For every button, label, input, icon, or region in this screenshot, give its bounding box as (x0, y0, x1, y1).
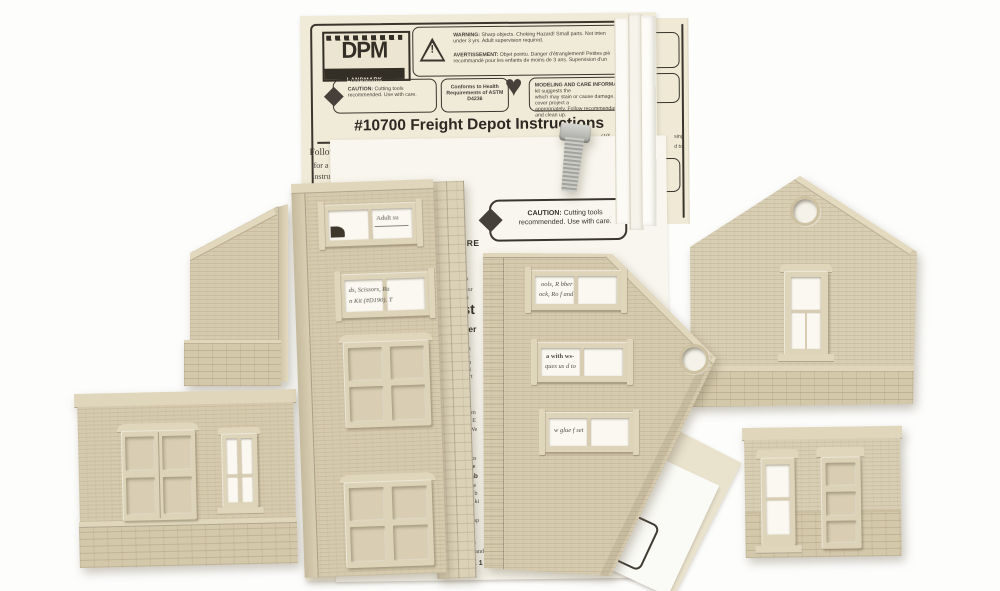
window-view-text: ds, Scissors, Ru (349, 286, 390, 295)
freight-door (121, 429, 197, 521)
piece-main-front-wall: Adult su ds, Scissors, Ru n Kit (#D190).… (291, 179, 447, 578)
window-mullion (237, 438, 242, 502)
foundation (184, 340, 281, 386)
piece-door-window-wall (744, 426, 902, 562)
window-opening: ools, R bber ock, Ro f and (535, 276, 617, 304)
top-edge-band (483, 252, 614, 258)
foundation (79, 521, 298, 568)
text-fragment: d to (674, 144, 683, 150)
door-center-seam (158, 432, 161, 518)
frame-end-block (318, 202, 326, 250)
window-opening (226, 438, 253, 503)
paper-graphic-blob (331, 226, 345, 237)
window-sill (756, 545, 802, 554)
window-opening: ds, Scissors, Ru n Kit (#D190). T (344, 277, 425, 312)
caution-diamond-icon (479, 208, 503, 232)
gable-face: ools, R bber ock, Ro f and a with ws- qu… (483, 250, 719, 580)
dpm-logo: DPM LANDMARK STRUCTURES™ (322, 31, 411, 82)
astm-text: Conforms to Health Requirements of ASTM … (446, 84, 504, 103)
window-opening: a with ws- ques us d to (541, 348, 623, 376)
cornice-band (187, 209, 277, 261)
frame-end-block (627, 339, 633, 385)
metal-chimney-casting (552, 120, 598, 198)
sprue-hole (679, 344, 709, 374)
sheet-border-line (681, 24, 684, 218)
frame-end-block (531, 339, 537, 385)
folded-sheet (640, 16, 656, 226)
door-panel (163, 476, 193, 514)
window-frame (221, 433, 259, 508)
window-view-text: ques us d to (545, 363, 576, 371)
lower-sash-mullion (805, 313, 807, 349)
text-fragment: sing (674, 134, 684, 140)
avert-line2: recommandé pour les enfants de moins de … (453, 57, 607, 65)
wall-face (190, 200, 278, 340)
warning-line2: under 3 yrs. Adult supervision required. (453, 38, 543, 45)
door-panel (826, 521, 857, 544)
window-mullion (580, 348, 584, 376)
freight-door (343, 479, 434, 568)
chimney-body (558, 137, 587, 193)
door-panel (392, 485, 427, 519)
window-frame: ds, Scissors, Ru n Kit (#D190). T (338, 271, 431, 318)
window-view-text: a with ws- (546, 353, 574, 361)
body-stub: Instru (312, 173, 331, 180)
freight-door (343, 339, 432, 428)
caution-box: CAUTION: Cutting tools recommended. Use … (333, 79, 437, 114)
caution-box-2: CAUTION: Cutting tools recommended. Use … (489, 198, 628, 242)
gable-face (686, 172, 920, 412)
left-slope-band (682, 168, 800, 249)
caution-2-label: CAUTION: (527, 210, 561, 217)
window-sill (218, 507, 264, 515)
door-panel (826, 491, 857, 515)
window-view-text: ock, Ro f and (539, 291, 573, 299)
window-view-text: ools, R bber (541, 281, 573, 289)
warning-exclamation: ! (419, 43, 445, 55)
logo-subtitle-bar: LANDMARK STRUCTURES™ (325, 68, 405, 80)
strip-center-joint (446, 181, 459, 578)
door-panel (391, 384, 426, 420)
door-panel (348, 347, 383, 381)
window-view-text: n Kit (#D190). T (349, 297, 393, 306)
frame-end-block (334, 271, 342, 321)
sprue-hole (790, 196, 820, 226)
folded-sheet-strips (614, 14, 662, 230)
caution-text: CAUTION: Cutting tools recommended. Use … (348, 86, 432, 99)
window-frame: w glue f set (543, 412, 635, 452)
door-panel (393, 524, 429, 560)
corner-pilaster (483, 250, 504, 580)
window-sill (778, 354, 834, 362)
piece-gable-end-wall (686, 172, 920, 412)
body-stub: for a (314, 162, 329, 169)
door-panel (125, 437, 155, 472)
window-frame: a with ws- ques us d to (535, 342, 629, 382)
window-view-text: w glue f set (554, 427, 583, 435)
astm-box: Conforms to Health Requirements of ASTM … (441, 78, 509, 113)
window-mullion (368, 209, 373, 239)
door-panel (825, 462, 856, 486)
window-opening: Adult su (328, 208, 413, 241)
frame-end-block (539, 409, 545, 455)
window-opening: w glue f set (549, 418, 629, 446)
product-photo-freight-depot-kit: ten ue outs ing sing d to bor DPM LANDMA… (0, 0, 1000, 591)
window-frame: Adult su (322, 202, 419, 247)
frame-end-block (621, 267, 627, 313)
window-mullion (382, 279, 387, 311)
door-panel (350, 526, 386, 562)
caution-2-text: CAUTION: Cutting tools recommended. Use … (513, 209, 617, 227)
door-panel (162, 436, 192, 471)
window-frame (760, 457, 795, 545)
window-frame: ools, R bber ock, Ro f and (529, 270, 623, 310)
frame-end-block (525, 267, 531, 313)
piece-freight-door-wall (76, 389, 298, 572)
door-panel (349, 487, 384, 521)
piece-gable-wall-rotated: ools, R bber ock, Ro f and a with ws- qu… (483, 250, 719, 580)
window-frame (784, 271, 828, 355)
window-mullion (574, 276, 578, 304)
paper-rule-line (375, 225, 409, 227)
window-opening (791, 277, 821, 349)
door-panel (390, 345, 425, 379)
panel-door (820, 456, 861, 549)
window-opening (766, 464, 791, 534)
door-panel (126, 477, 156, 515)
piece-sloped-side-wall (183, 200, 290, 386)
logo-wordmark: DPM (324, 36, 404, 64)
foundation (688, 371, 918, 407)
heart-icon: ♥ (505, 72, 523, 102)
window-meeting-rail (766, 497, 790, 500)
lower-slope-shade (599, 353, 713, 580)
window-mullion (587, 418, 591, 446)
window-meeting-rail (227, 474, 253, 478)
frame-end-block (633, 409, 639, 455)
door-panel (349, 386, 384, 422)
window-view-text: Adult su (376, 214, 398, 222)
